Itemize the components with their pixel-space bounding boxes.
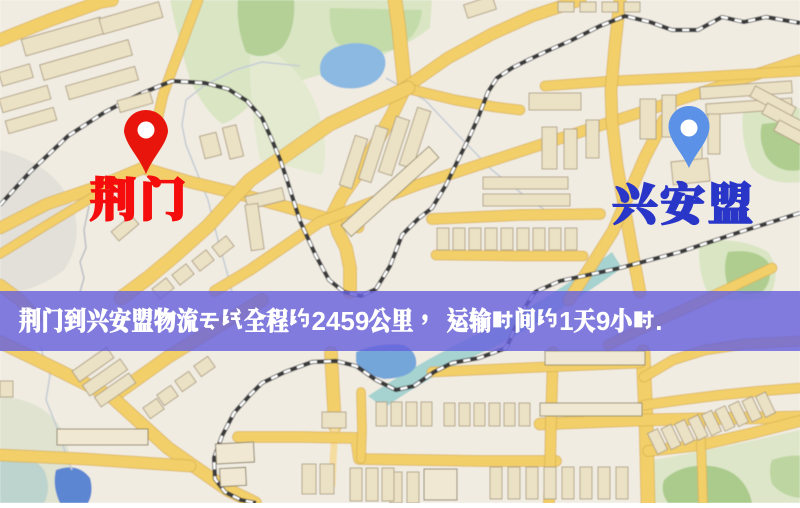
svg-text:9: 9 bbox=[596, 306, 610, 336]
svg-text:2459: 2459 bbox=[312, 306, 370, 336]
svg-text:1: 1 bbox=[559, 306, 573, 336]
svg-text:.: . bbox=[655, 306, 662, 336]
